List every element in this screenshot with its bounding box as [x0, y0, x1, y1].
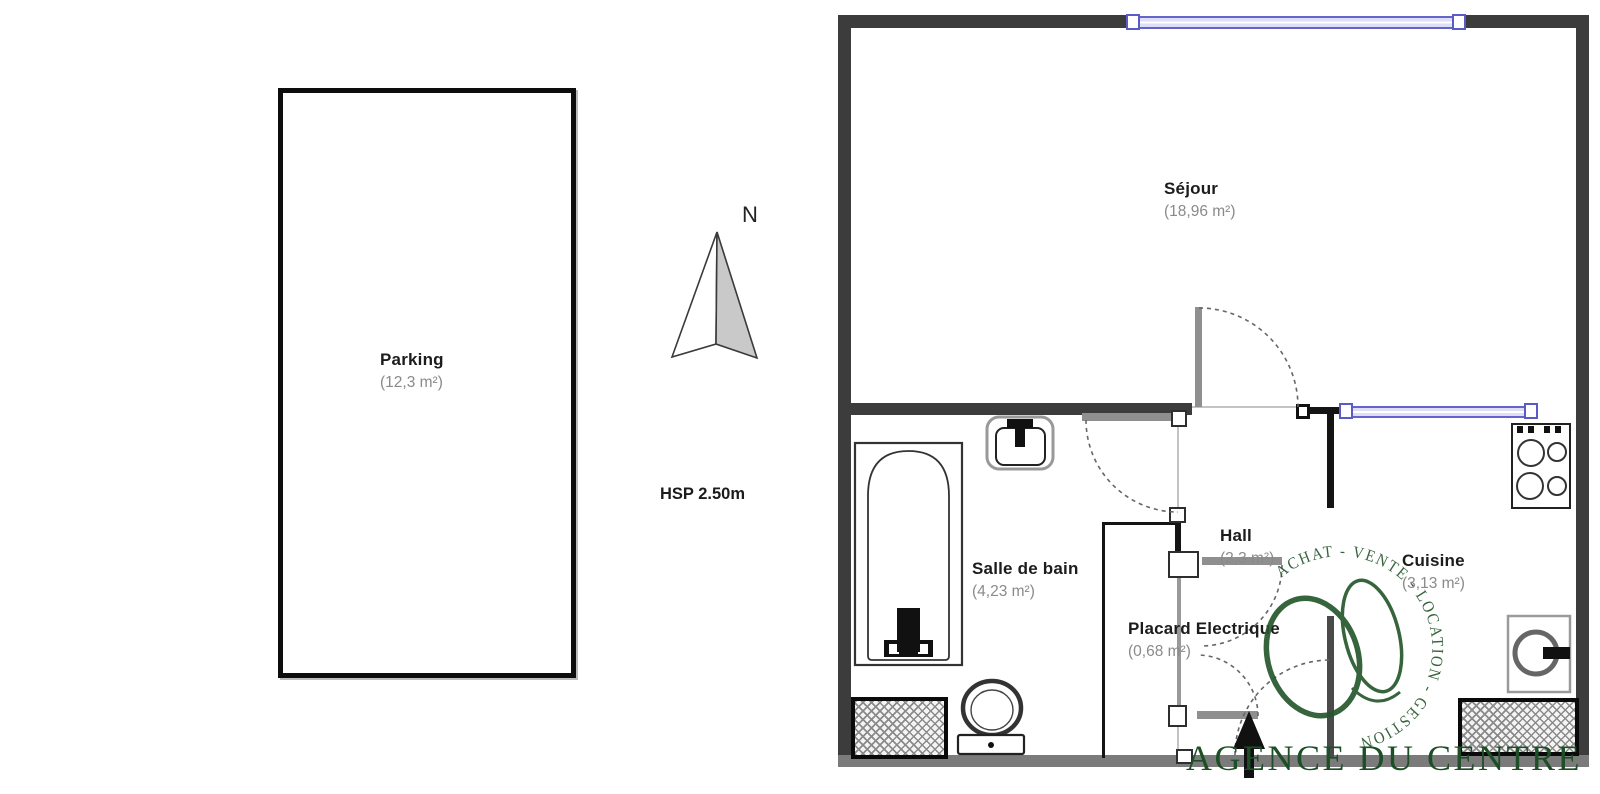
washbasin-icon	[987, 417, 1053, 469]
door-arc-sejour	[1199, 308, 1298, 407]
room-label-salle-de-bain: Salle de bain (4,23 m²)	[972, 559, 1079, 601]
room-name: Parking	[380, 350, 444, 370]
wall-right	[1576, 15, 1589, 767]
room-area: (0,68 m²)	[1128, 643, 1280, 661]
room-label-sejour: Séjour (18,96 m²)	[1164, 179, 1236, 221]
door-jamb-marker	[1168, 705, 1187, 727]
door-leaf-entry	[1197, 711, 1258, 719]
door-jamb-marker	[1169, 507, 1186, 523]
window-end-marker	[1452, 14, 1466, 30]
wall-hall-cuisine-top	[1327, 413, 1334, 508]
ceiling-height-label: HSP 2.50m	[660, 485, 745, 504]
door-arc-entry	[1197, 655, 1258, 716]
window-end-marker	[1524, 403, 1538, 419]
washing-machine-icon	[1508, 616, 1570, 692]
placard-left-wall	[1102, 522, 1105, 758]
wall-top-right	[1458, 15, 1589, 28]
room-label-placard: Placard Electrique (0,68 m²)	[1128, 619, 1280, 661]
door-jamb-marker	[1296, 404, 1310, 419]
toilet-icon	[958, 681, 1024, 754]
wall-left	[838, 15, 851, 767]
room-name: Salle de bain	[972, 559, 1079, 579]
door-leaf-bathroom	[1082, 413, 1171, 421]
agency-name-text: AGENCE DU CENTRE	[1186, 737, 1582, 779]
room-area: (12,3 m²)	[380, 374, 444, 392]
stove-cooktop-icon	[1512, 424, 1570, 508]
room-name: Hall	[1220, 526, 1274, 546]
window-sejour	[1133, 16, 1459, 29]
north-label: N	[742, 202, 758, 228]
floor-plan-page: Parking (12,3 m²) N HSP 2.50m	[0, 0, 1600, 794]
window-end-marker	[1339, 403, 1353, 419]
room-name: Placard Electrique	[1128, 619, 1280, 639]
window-cuisine	[1346, 406, 1531, 418]
hatched-shaft-bathroom	[851, 697, 948, 759]
compass-north-arrow-icon	[672, 232, 757, 358]
room-area: (3,13 m²)	[1402, 575, 1465, 593]
room-label-cuisine: Cuisine (3,13 m²)	[1402, 551, 1465, 593]
window-end-marker	[1126, 14, 1140, 30]
room-area: (18,96 m²)	[1164, 203, 1236, 221]
door-swing-arcs	[1086, 308, 1330, 755]
room-area: (2,3 m²)	[1220, 550, 1274, 568]
room-name: Séjour	[1164, 179, 1236, 199]
door-arc-bathroom	[1086, 420, 1178, 512]
door-jamb-marker	[1171, 410, 1187, 427]
door-jamb-marker	[1168, 551, 1199, 578]
room-name: Cuisine	[1402, 551, 1465, 571]
door-opening-line	[1192, 406, 1306, 408]
room-label-parking: Parking (12,3 m²)	[380, 350, 444, 392]
room-area: (4,23 m²)	[972, 583, 1079, 601]
bathtub-icon	[855, 443, 962, 665]
door-leaf-sejour	[1195, 307, 1202, 407]
wall-top-left	[838, 15, 1134, 28]
room-label-hall: Hall (2,3 m²)	[1220, 526, 1274, 568]
